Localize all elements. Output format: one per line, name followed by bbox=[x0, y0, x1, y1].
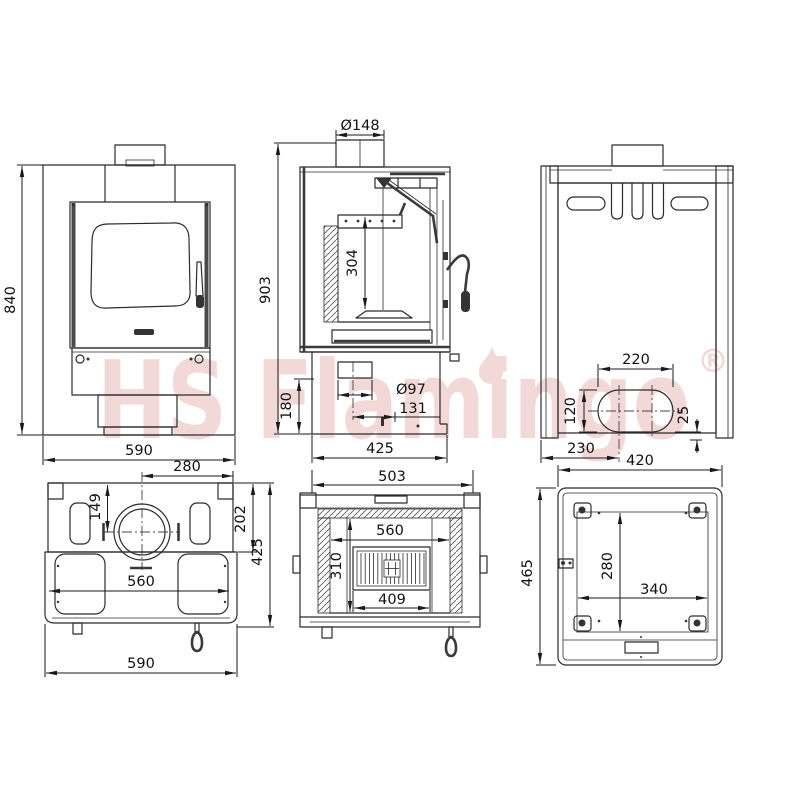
top-view: 280 149 202 425 560 590 bbox=[45, 459, 274, 677]
dim-firebox-height: 304 bbox=[345, 249, 361, 277]
door-handle bbox=[196, 262, 203, 296]
dim-oval-span: 220 bbox=[622, 352, 650, 368]
front-section-view: 503 560 310 409 bbox=[293, 469, 487, 656]
dim-depth: 465 bbox=[520, 559, 536, 587]
dim-total-height: 903 bbox=[258, 276, 274, 304]
brand-plate bbox=[134, 329, 154, 335]
dim-total-width: 590 bbox=[127, 656, 155, 672]
handle-knob bbox=[192, 632, 202, 651]
dim-body-width: 503 bbox=[378, 469, 406, 485]
firebrick-lining bbox=[324, 226, 338, 322]
dim-plate-depth: 280 bbox=[600, 552, 616, 580]
body-section bbox=[300, 167, 450, 352]
flue-stub bbox=[115, 145, 165, 165]
dim-back-depth: 202 bbox=[233, 505, 249, 533]
stove-technical-drawing: HS Flamingo ® 840 590 bbox=[0, 0, 800, 800]
door-glass bbox=[91, 223, 190, 308]
top-vent-left bbox=[70, 503, 90, 544]
dim-plate-width: 340 bbox=[640, 582, 668, 598]
base-plate bbox=[577, 512, 708, 632]
dim-width: 420 bbox=[626, 453, 654, 469]
dim-flue-to-back: 149 bbox=[88, 493, 104, 521]
vent-pill-right bbox=[671, 197, 708, 210]
dim-depth: 425 bbox=[366, 441, 394, 457]
dim-inner-depth: 310 bbox=[329, 552, 345, 580]
vent-slot bbox=[632, 183, 643, 219]
dim-front-width: 590 bbox=[125, 443, 153, 459]
dim-outlet-diameter: Ø97 bbox=[396, 382, 426, 398]
top-body bbox=[48, 483, 233, 552]
base-slot bbox=[625, 642, 658, 653]
base-outline bbox=[558, 488, 722, 665]
dim-oval-height: 120 bbox=[563, 397, 579, 425]
dim-flue-to-right: 280 bbox=[173, 459, 201, 475]
dim-base-height: 180 bbox=[279, 392, 295, 420]
baffle-plate bbox=[383, 180, 437, 243]
bottom-view: 420 465 280 340 bbox=[520, 453, 722, 665]
dim-outlet-offset: 131 bbox=[399, 401, 427, 417]
watermark-registered-mark: ® bbox=[697, 342, 729, 380]
vent-slot bbox=[612, 183, 623, 219]
vent-slot bbox=[653, 183, 664, 219]
dim-outlet-center: 230 bbox=[567, 441, 595, 457]
dim-bottom-clearance: 25 bbox=[676, 406, 692, 424]
dim-total-depth: 425 bbox=[250, 538, 266, 566]
grate-section bbox=[356, 311, 412, 318]
dim-front-height: 840 bbox=[3, 286, 19, 314]
dim-grate-width: 409 bbox=[378, 592, 406, 608]
foot bbox=[322, 627, 332, 638]
lining-right bbox=[450, 518, 462, 613]
dim-inner-width: 560 bbox=[376, 523, 404, 539]
flue-stub-back bbox=[612, 145, 663, 166]
top-vent-right bbox=[190, 503, 210, 544]
technical-drawing-page: HS Flamingo ® 840 590 bbox=[0, 0, 800, 800]
vent-pill-left bbox=[567, 197, 605, 210]
dim-inner-width: 560 bbox=[127, 574, 155, 590]
dim-flue-diameter: Ø148 bbox=[340, 118, 379, 134]
foot bbox=[73, 623, 82, 634]
handle-knob bbox=[446, 637, 456, 656]
side-panel-right bbox=[716, 166, 733, 438]
